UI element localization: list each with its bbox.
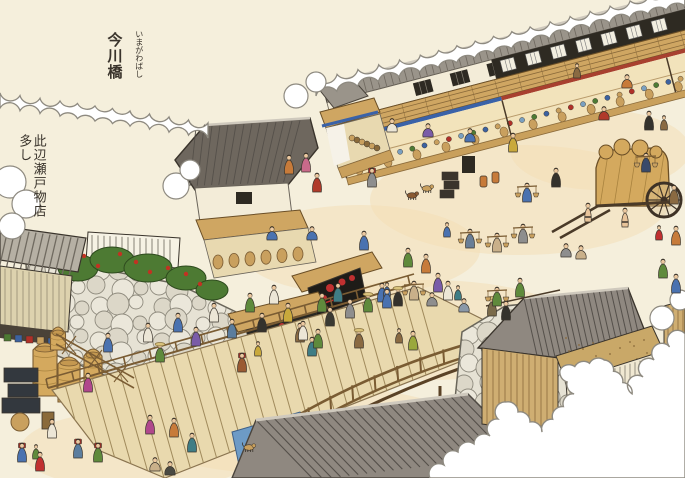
figure [73, 439, 82, 458]
figure [622, 208, 629, 227]
figure [354, 329, 364, 349]
figure [363, 293, 373, 313]
figure [155, 343, 165, 363]
figure [585, 203, 592, 222]
figure [393, 287, 403, 307]
figure [237, 353, 246, 372]
figure [17, 443, 26, 462]
area-note-label: 此辺瀬戸物店多し [16, 134, 45, 222]
bridge-title-label: 今川橋 [106, 32, 123, 104]
imagawabashi-scene [0, 0, 685, 478]
figure [367, 168, 376, 187]
illustration: 今川橋 いまがわばし 此辺瀬戸物店多し [0, 0, 685, 478]
figure [93, 443, 102, 462]
bridge-title-furigana: いまがわばし [134, 30, 143, 94]
